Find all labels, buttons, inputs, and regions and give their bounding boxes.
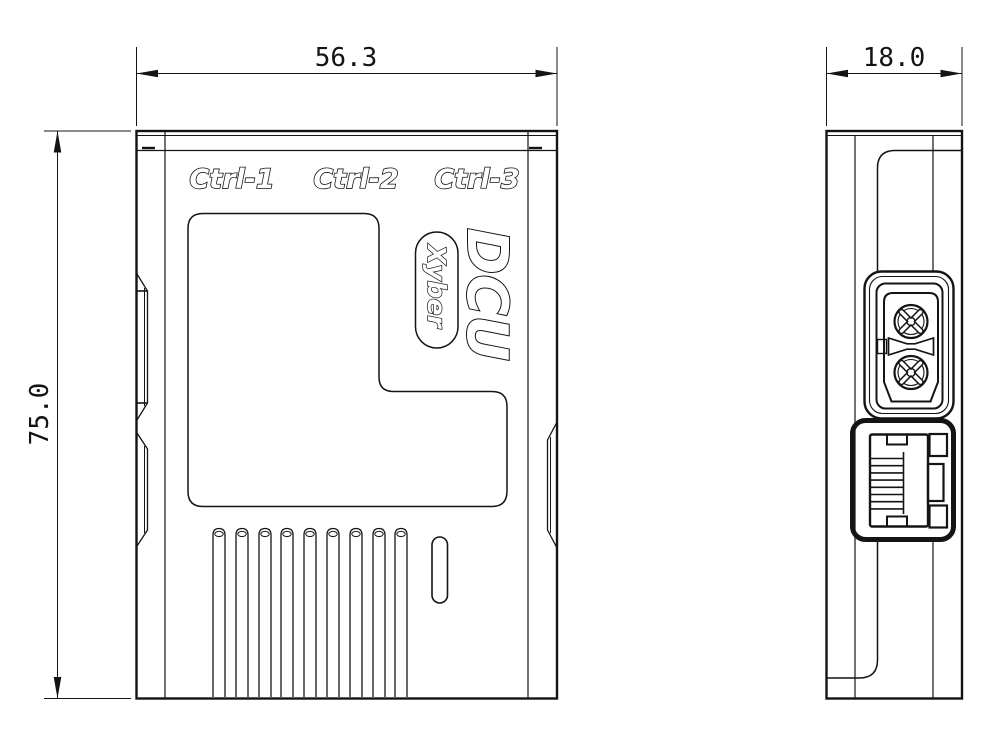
rj45-pins bbox=[871, 452, 904, 514]
ctrl-2-label: Ctrl-2 bbox=[313, 164, 398, 195]
xt30-bowtie-mark bbox=[889, 338, 934, 355]
xt30-socket-top bbox=[895, 305, 928, 338]
dcu-product-logo: DCU bbox=[454, 228, 519, 361]
vent-slat bbox=[327, 529, 339, 698]
vent-slat-top bbox=[329, 531, 337, 536]
dim-arrow-icon bbox=[54, 677, 62, 699]
dim-arrow-icon bbox=[827, 70, 849, 78]
side-cover-contour-bottom bbox=[827, 540, 878, 678]
socket-cross-fill bbox=[902, 312, 921, 331]
side-outline bbox=[827, 131, 963, 699]
vent-slat-top bbox=[261, 531, 269, 536]
vent-slat bbox=[304, 529, 316, 698]
vent-slat bbox=[281, 529, 293, 698]
xt30-key-tab bbox=[878, 340, 887, 354]
dim-arrow-icon bbox=[54, 131, 62, 153]
oval-slot bbox=[432, 537, 448, 603]
socket-cross-fill bbox=[902, 363, 921, 382]
left-notch-lower bbox=[137, 433, 148, 546]
ctrl-1-label: Ctrl-1 bbox=[189, 164, 274, 195]
vent-slat-top bbox=[215, 531, 223, 536]
left-notch-upper bbox=[137, 274, 148, 420]
rj45-ethernet-port bbox=[853, 421, 954, 540]
dim-front-width: 56.3 bbox=[137, 43, 558, 126]
rj45-corner-block-bottom bbox=[930, 506, 948, 528]
dim-arrow-icon bbox=[941, 70, 963, 78]
side-cover-contour-top bbox=[878, 151, 963, 272]
right-notch bbox=[548, 423, 557, 547]
front-view: Ctrl-1 Ctrl-2 Ctrl-3 DCU Xyber bbox=[137, 131, 558, 699]
vent-slat-top bbox=[238, 531, 246, 536]
vent-slat bbox=[259, 529, 271, 698]
vent-slat-top bbox=[352, 531, 360, 536]
rj45-key-bottom bbox=[887, 517, 907, 527]
front-outline bbox=[137, 131, 558, 699]
vent-slat bbox=[350, 529, 362, 698]
dcu-engineering-drawing: Ctrl-1 Ctrl-2 Ctrl-3 DCU Xyber bbox=[0, 0, 1000, 737]
dim-side-depth: 18.0 bbox=[827, 43, 963, 126]
vent-slat bbox=[236, 529, 248, 698]
front-height-value: 75.0 bbox=[25, 383, 55, 446]
side-depth-value: 18.0 bbox=[863, 43, 926, 73]
rj45-key-top bbox=[887, 435, 907, 445]
front-width-value: 56.3 bbox=[315, 43, 378, 73]
vent-slat-top bbox=[306, 531, 314, 536]
rj45-corner-block-top bbox=[930, 434, 948, 456]
vent-slat bbox=[395, 529, 407, 698]
vent-slat-top bbox=[283, 531, 291, 536]
vent-slat bbox=[373, 529, 385, 698]
vent-slat bbox=[213, 529, 225, 698]
vent-slat-top bbox=[375, 531, 383, 536]
technical-drawing-canvas: Ctrl-1 Ctrl-2 Ctrl-3 DCU Xyber bbox=[0, 0, 1000, 737]
side-view bbox=[827, 131, 963, 699]
dim-arrow-icon bbox=[137, 70, 159, 78]
dim-arrow-icon bbox=[536, 70, 558, 78]
ctrl-3-label: Ctrl-3 bbox=[434, 164, 519, 195]
vent-slats bbox=[213, 529, 407, 698]
rj45-latch-step bbox=[928, 464, 944, 501]
vent-slat-top bbox=[397, 531, 405, 536]
dim-front-height: 75.0 bbox=[25, 131, 131, 699]
xt30-power-connector bbox=[865, 272, 954, 419]
xyber-brand-logo: Xyber bbox=[422, 243, 451, 329]
xt30-socket-bottom bbox=[895, 356, 928, 389]
